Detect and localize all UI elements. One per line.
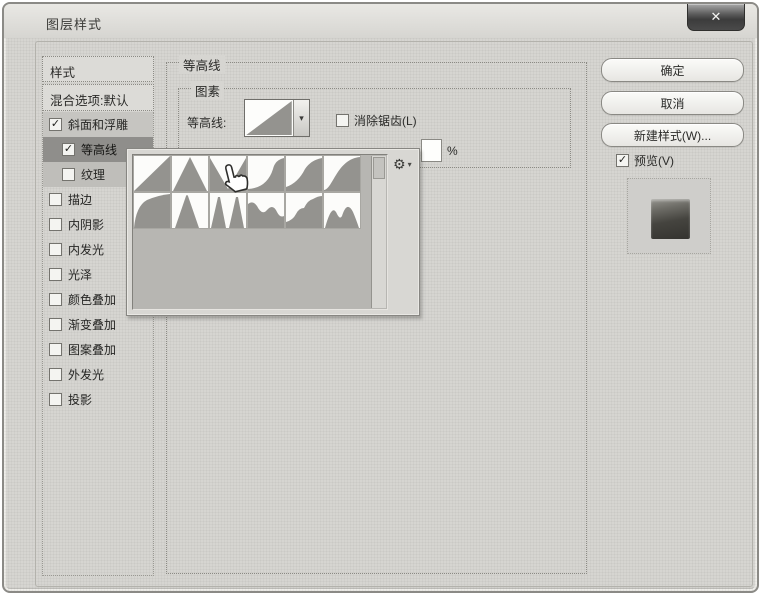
outer-glow-checkbox[interactable] — [49, 368, 62, 381]
sidebar-item-label: 描边 — [68, 191, 92, 208]
contour-preset-gaussian[interactable] — [323, 155, 361, 192]
drop-shadow-checkbox[interactable] — [49, 393, 62, 406]
sidebar-item-label: 外发光 — [68, 366, 104, 383]
new-style-button[interactable]: 新建样式(W)... — [601, 123, 744, 147]
inner-shadow-checkbox[interactable] — [49, 218, 62, 231]
preview-checkbox[interactable]: ✓ — [616, 154, 629, 167]
contour-field-label: 等高线: — [187, 114, 226, 131]
sidebar-item-label: 内发光 — [68, 241, 104, 258]
contour-preset-sawtooth[interactable] — [323, 192, 361, 229]
stroke-checkbox[interactable] — [49, 193, 62, 206]
contour-picker-list — [132, 154, 388, 310]
contour-preset-half-round[interactable] — [133, 192, 171, 229]
preview-effect-blob — [651, 199, 690, 239]
contour-preset-rolling-slope-descending[interactable] — [247, 192, 285, 229]
texture-checkbox[interactable] — [62, 168, 75, 181]
contour-preset-linear[interactable] — [133, 155, 171, 192]
preview-toggle[interactable]: ✓ 预览(V) — [616, 152, 674, 169]
sidebar-item-outer-glow[interactable]: 外发光 — [43, 362, 153, 387]
blending-options-label: 混合选项:默认 — [50, 94, 128, 108]
color-overlay-checkbox[interactable] — [49, 293, 62, 306]
picker-scrollbar-thumb[interactable] — [373, 157, 385, 179]
sidebar-item-bevel-emboss[interactable]: ✓斜面和浮雕 — [43, 112, 153, 137]
picker-menu-button[interactable]: ⚙ ▾ — [393, 155, 419, 173]
contour-preset-rounded-steps[interactable] — [285, 192, 323, 229]
dropdown-arrow-icon[interactable]: ▾ — [293, 100, 309, 136]
sidebar-item-blending-options[interactable]: 混合选项:默认 — [42, 84, 154, 111]
contour-preset-grid — [133, 155, 361, 229]
contour-preset-ring-double[interactable] — [209, 192, 247, 229]
contour-preset-cove-deep[interactable] — [247, 155, 285, 192]
sidebar-item-label: 颜色叠加 — [68, 291, 116, 308]
contour-preset-cone-inverted[interactable] — [209, 155, 247, 192]
ok-button[interactable]: 确定 — [601, 58, 744, 82]
bevel-emboss-checkbox[interactable]: ✓ — [49, 118, 62, 131]
preview-label: 预览(V) — [634, 152, 674, 169]
close-icon: ✕ — [711, 9, 722, 24]
sidebar-item-label: 投影 — [68, 391, 92, 408]
picker-scrollbar[interactable] — [371, 156, 386, 308]
antialias-checkbox[interactable] — [336, 114, 349, 127]
contour-preset-cone[interactable] — [171, 155, 209, 192]
inner-glow-checkbox[interactable] — [49, 243, 62, 256]
pattern-overlay-checkbox[interactable] — [49, 343, 62, 356]
sidebar-item-drop-shadow[interactable]: 投影 — [43, 387, 153, 412]
sidebar-item-label: 渐变叠加 — [68, 316, 116, 333]
style-preview-thumbnail — [627, 178, 711, 254]
layer-style-dialog: 图层样式 ✕ 样式 混合选项:默认 ✓斜面和浮雕✓等高线纹理描边内阴影内发光光泽… — [2, 2, 759, 593]
dialog-title: 图层样式 — [46, 14, 102, 33]
sidebar-item-label: 图案叠加 — [68, 341, 116, 358]
gradient-overlay-checkbox[interactable] — [49, 318, 62, 331]
contour-swatch-linear-icon — [245, 100, 293, 136]
sidebar-item-label: 内阴影 — [68, 216, 104, 233]
satin-checkbox[interactable] — [49, 268, 62, 281]
contour-checkbox[interactable]: ✓ — [62, 143, 75, 156]
cancel-button[interactable]: 取消 — [601, 91, 744, 115]
sidebar-item-pattern-overlay[interactable]: 图案叠加 — [43, 337, 153, 362]
gear-icon: ⚙ — [393, 156, 406, 172]
close-button[interactable]: ✕ — [687, 4, 745, 31]
screenshot-stage: 图层样式 ✕ 样式 混合选项:默认 ✓斜面和浮雕✓等高线纹理描边内阴影内发光光泽… — [0, 0, 762, 597]
styles-label: 样式 — [50, 66, 75, 80]
titlebar[interactable]: 图层样式 ✕ — [4, 4, 757, 38]
sidebar-item-label: 等高线 — [81, 141, 117, 158]
contour-group-title: 等高线 — [179, 55, 225, 74]
antialias-label: 消除锯齿(L) — [354, 112, 417, 129]
contour-preset-cove-shallow[interactable] — [285, 155, 323, 192]
contour-preset-ring[interactable] — [171, 192, 209, 229]
antialias-toggle[interactable]: 消除锯齿(L) — [336, 112, 417, 129]
elements-group-title: 图素 — [191, 81, 224, 100]
sidebar-item-styles[interactable]: 样式 — [42, 56, 154, 82]
range-input[interactable] — [421, 139, 442, 162]
gear-caret-icon: ▾ — [408, 160, 412, 169]
contour-picker-flyout: ⚙ ▾ — [126, 148, 420, 316]
sidebar-item-label: 光泽 — [68, 266, 92, 283]
sidebar-item-label: 纹理 — [81, 166, 105, 183]
range-unit-label: % — [447, 144, 458, 158]
sidebar-item-label: 斜面和浮雕 — [68, 116, 128, 133]
contour-dropdown[interactable]: ▾ — [244, 99, 310, 137]
